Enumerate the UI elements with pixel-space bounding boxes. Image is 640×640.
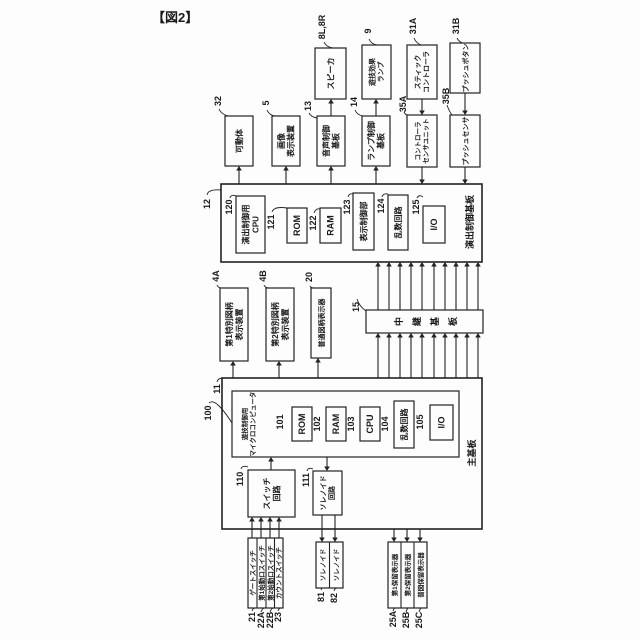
label-io105: I/O	[437, 416, 447, 428]
ref-random104: 104	[380, 416, 390, 431]
label-normal-hold-display: 普図保留表示器	[416, 552, 425, 598]
ref-solenoid-circuit: 111	[301, 473, 311, 487]
label-push-sensor: プッシュセンサ	[461, 117, 470, 166]
ref-ram122: 122	[308, 215, 318, 230]
ref-stick-controller: 31A	[408, 17, 418, 34]
label-rom101: ROM	[297, 414, 307, 435]
ref-switch-circuit: 110	[235, 472, 245, 487]
box-relay-board	[366, 310, 483, 333]
label-io125: I/O	[429, 218, 439, 230]
ref-sp2-display: 4B	[258, 270, 268, 282]
ref-rom101: 101	[275, 414, 285, 429]
ref-image-display: 5	[261, 100, 271, 105]
ref-sp1-display: 4A	[211, 270, 221, 282]
label-cpu103: CPU	[365, 414, 375, 433]
ref-push-button: 31B	[451, 17, 461, 34]
ref-effect-cpu: 120	[224, 199, 234, 214]
ref-main-board: 11	[212, 384, 222, 394]
ref-speaker: 8L,8R	[317, 14, 327, 39]
ref-rom121: 121	[266, 214, 276, 229]
label-ram102: RAM	[331, 414, 341, 435]
ref-effect-board: 12	[202, 199, 212, 209]
label-gate-switch: ゲートスイッチ	[248, 550, 257, 596]
label-random104: 乱数回路	[399, 408, 409, 441]
ref-cpu103: 103	[346, 416, 356, 431]
ref-relay-board: 15	[351, 302, 361, 312]
ref-ram102: 102	[312, 416, 322, 431]
label-random124: 乱数回路	[393, 206, 403, 239]
block-diagram: 【図2】 スピーカ 遊技効果ランプ スティックコントローラ プッシュボタン 可動…	[0, 0, 640, 640]
box-switch-circuit	[248, 470, 295, 517]
ref-game-micom: 100	[203, 405, 213, 420]
label-effect-lamp: 遊技効果ランプ	[368, 58, 386, 86]
box-stick-controller	[407, 45, 437, 99]
label-count-switch: カウントスイッチ	[275, 547, 283, 600]
box-solenoid-circuit	[313, 471, 342, 515]
label-hold1-display: 第1保留表示器	[390, 553, 399, 596]
ref-effect-lamp: 9	[363, 28, 373, 33]
ref-hold1-display: 25A	[388, 610, 398, 627]
label-normal-display: 普通図柄表示器	[317, 298, 326, 348]
ref-solenoid82: 82	[329, 593, 339, 603]
box-effect-lamp	[362, 45, 391, 99]
ref-io125: 125	[411, 199, 421, 214]
label-solenoid81: ソレノイド	[319, 549, 327, 582]
ref-lamp-board: 14	[349, 97, 359, 107]
label-speaker: スピーカ	[326, 58, 336, 90]
label-stick-controller: スティックコントローラ	[413, 51, 431, 93]
ref-count-switch: 23	[273, 612, 283, 622]
ref-normal-display: 20	[304, 272, 314, 282]
ref-sound-board: 13	[303, 101, 313, 111]
label-rom121: ROM	[292, 215, 302, 236]
label-movable-body: 可動体	[234, 128, 244, 153]
label-ram122: RAM	[326, 215, 336, 236]
label-start2-switch: 第2始動口スイッチ	[266, 545, 275, 601]
label-main-board: 主基板	[466, 439, 477, 467]
box-effect-cpu	[236, 196, 265, 253]
ref-io105: 105	[415, 414, 425, 429]
ref-movable-body: 32	[213, 96, 223, 106]
ref-controller-sensor: 35A	[398, 95, 408, 112]
label-effect-control-board: 演出制御基板	[464, 194, 475, 249]
label-display-ctrl: 表示制御部	[359, 202, 369, 243]
label-push-button: プッシュボタン	[461, 44, 470, 93]
ref-normal-hold-display: 25C	[414, 611, 424, 628]
patent-figure-page: 【図2】 スピーカ 遊技効果ランプ スティックコントローラ プッシュボタン 可動…	[0, 0, 640, 640]
ref-display-ctrl: 123	[342, 199, 352, 214]
box-controller-sensor	[407, 115, 437, 167]
figure-title: 【図2】	[152, 10, 198, 25]
ref-solenoid81: 81	[316, 592, 326, 602]
ref-push-sensor: 35B	[441, 87, 451, 104]
label-start1-switch: 第1始動口スイッチ	[257, 545, 266, 601]
ref-random124: 124	[376, 198, 386, 213]
label-solenoid82: ソレノイド	[333, 549, 341, 582]
label-hold2-display: 第2保留表示器	[403, 553, 412, 596]
ref-hold2-display: 25B	[401, 611, 411, 628]
